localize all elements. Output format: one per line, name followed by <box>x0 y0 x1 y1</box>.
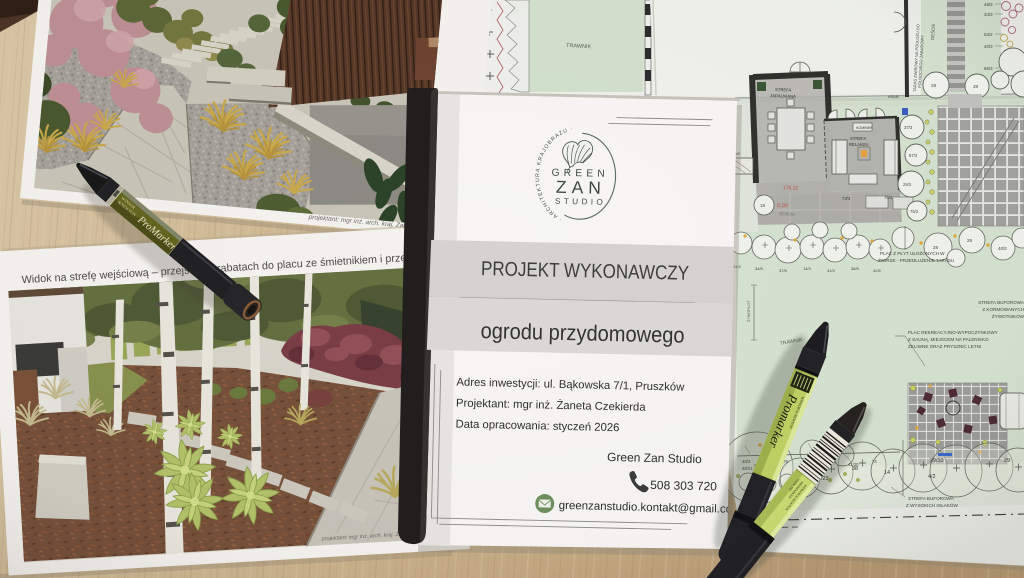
svg-text:RELAKSU: RELAKSU <box>849 142 869 147</box>
svg-text:Green Zan Studio: Green Zan Studio <box>607 450 702 466</box>
svg-text:57/3: 57/3 <box>909 153 918 158</box>
svg-text:Z SAUNĄ, MIEJSCEM NA PALENISKO: Z SAUNĄ, MIEJSCEM NA PALENISKO <box>908 337 989 342</box>
svg-text:29: 29 <box>1004 458 1010 464</box>
svg-text:29/2: 29/2 <box>903 182 912 187</box>
svg-text:ŻWIRZE - PRZEDŁUŻENIE TARASU: ŻWIRZE - PRZEDŁUŻENIE TARASU <box>878 257 954 263</box>
svg-text:75/2: 75/2 <box>910 209 919 214</box>
svg-text:PLAC Z PŁYT UŁOŻONYCH W: PLAC Z PŁYT UŁOŻONYCH W <box>880 250 945 256</box>
svg-text:Z WYSOKICH IGŁAKÓW: Z WYSOKICH IGŁAKÓW <box>906 502 958 508</box>
svg-text:Z KORMOWANYCH: Z KORMOWANYCH <box>982 307 1024 312</box>
svg-text:34/5: 34/5 <box>755 266 764 271</box>
svg-text:75/3: 75/3 <box>884 195 893 200</box>
svg-text:STREFA BUFOROWA: STREFA BUFOROWA <box>908 496 955 501</box>
svg-text:176,22: 176,22 <box>783 185 799 192</box>
svg-text:STREFA: STREFA <box>850 136 866 141</box>
svg-text:0,00: 0,00 <box>777 203 788 209</box>
svg-text:74: 74 <box>872 459 877 464</box>
svg-text:KOMINEK: KOMINEK <box>856 126 873 130</box>
svg-text:29/10: 29/10 <box>930 458 944 464</box>
svg-text:KRAN: KRAN <box>888 95 899 99</box>
svg-text:STREFA: STREFA <box>775 87 792 93</box>
svg-text:41/20: 41/20 <box>848 462 859 467</box>
svg-text:37/3: 37/3 <box>904 125 913 130</box>
svg-text:ZEJŚCIE: ZEJŚCIE <box>779 211 795 217</box>
svg-text:14: 14 <box>884 470 890 476</box>
svg-text:DEŚCIE: DEŚCIE <box>930 23 936 40</box>
svg-text:14/3: 14/3 <box>803 266 812 271</box>
svg-text:73/3: 73/3 <box>842 196 851 201</box>
svg-text:48/3: 48/3 <box>984 2 993 7</box>
svg-text:37/5: 37/5 <box>779 268 788 273</box>
svg-text:34/3: 34/3 <box>984 12 993 17</box>
svg-text:28: 28 <box>931 83 937 88</box>
svg-text:40/3: 40/3 <box>998 246 1007 251</box>
svg-text:4/2: 4/2 <box>928 474 936 480</box>
svg-text:40/3: 40/3 <box>984 44 993 49</box>
svg-text:53/2: 53/2 <box>984 32 993 37</box>
svg-text:PLAC REKREACYJNO-WYPOCZYNKOWY: PLAC REKREACYJNO-WYPOCZYNKOWY <box>908 330 998 335</box>
svg-text:41/3: 41/3 <box>827 268 836 273</box>
svg-text:86/3: 86/3 <box>984 66 993 71</box>
svg-text:ogrodu przydomowego: ogrodu przydomowego <box>480 318 685 348</box>
svg-text:18: 18 <box>760 203 765 208</box>
svg-text:JADALNIANA: JADALNIANA <box>770 93 796 99</box>
svg-text:28: 28 <box>973 84 979 89</box>
svg-text:ŻYWOTNIKÓW: ŻYWOTNIKÓW <box>992 313 1024 319</box>
svg-text:28: 28 <box>933 245 938 250</box>
svg-text:ŻYWOPŁOT: ŻYWOPŁOT <box>746 300 751 322</box>
svg-text:ZAN: ZAN <box>556 177 606 198</box>
svg-text:42/5: 42/5 <box>873 268 882 273</box>
svg-text:28: 28 <box>967 238 972 243</box>
svg-text:STUDIO: STUDIO <box>555 197 607 207</box>
svg-text:36/5: 36/5 <box>851 266 860 271</box>
svg-text:508 303 720: 508 303 720 <box>650 478 717 494</box>
svg-text:STREFA BUFOROWA: STREFA BUFOROWA <box>978 300 1024 305</box>
svg-text:ŻELIWNE ORAZ PRYSZNIC LETNI: ŻELIWNE ORAZ PRYSZNIC LETNI <box>908 343 981 349</box>
